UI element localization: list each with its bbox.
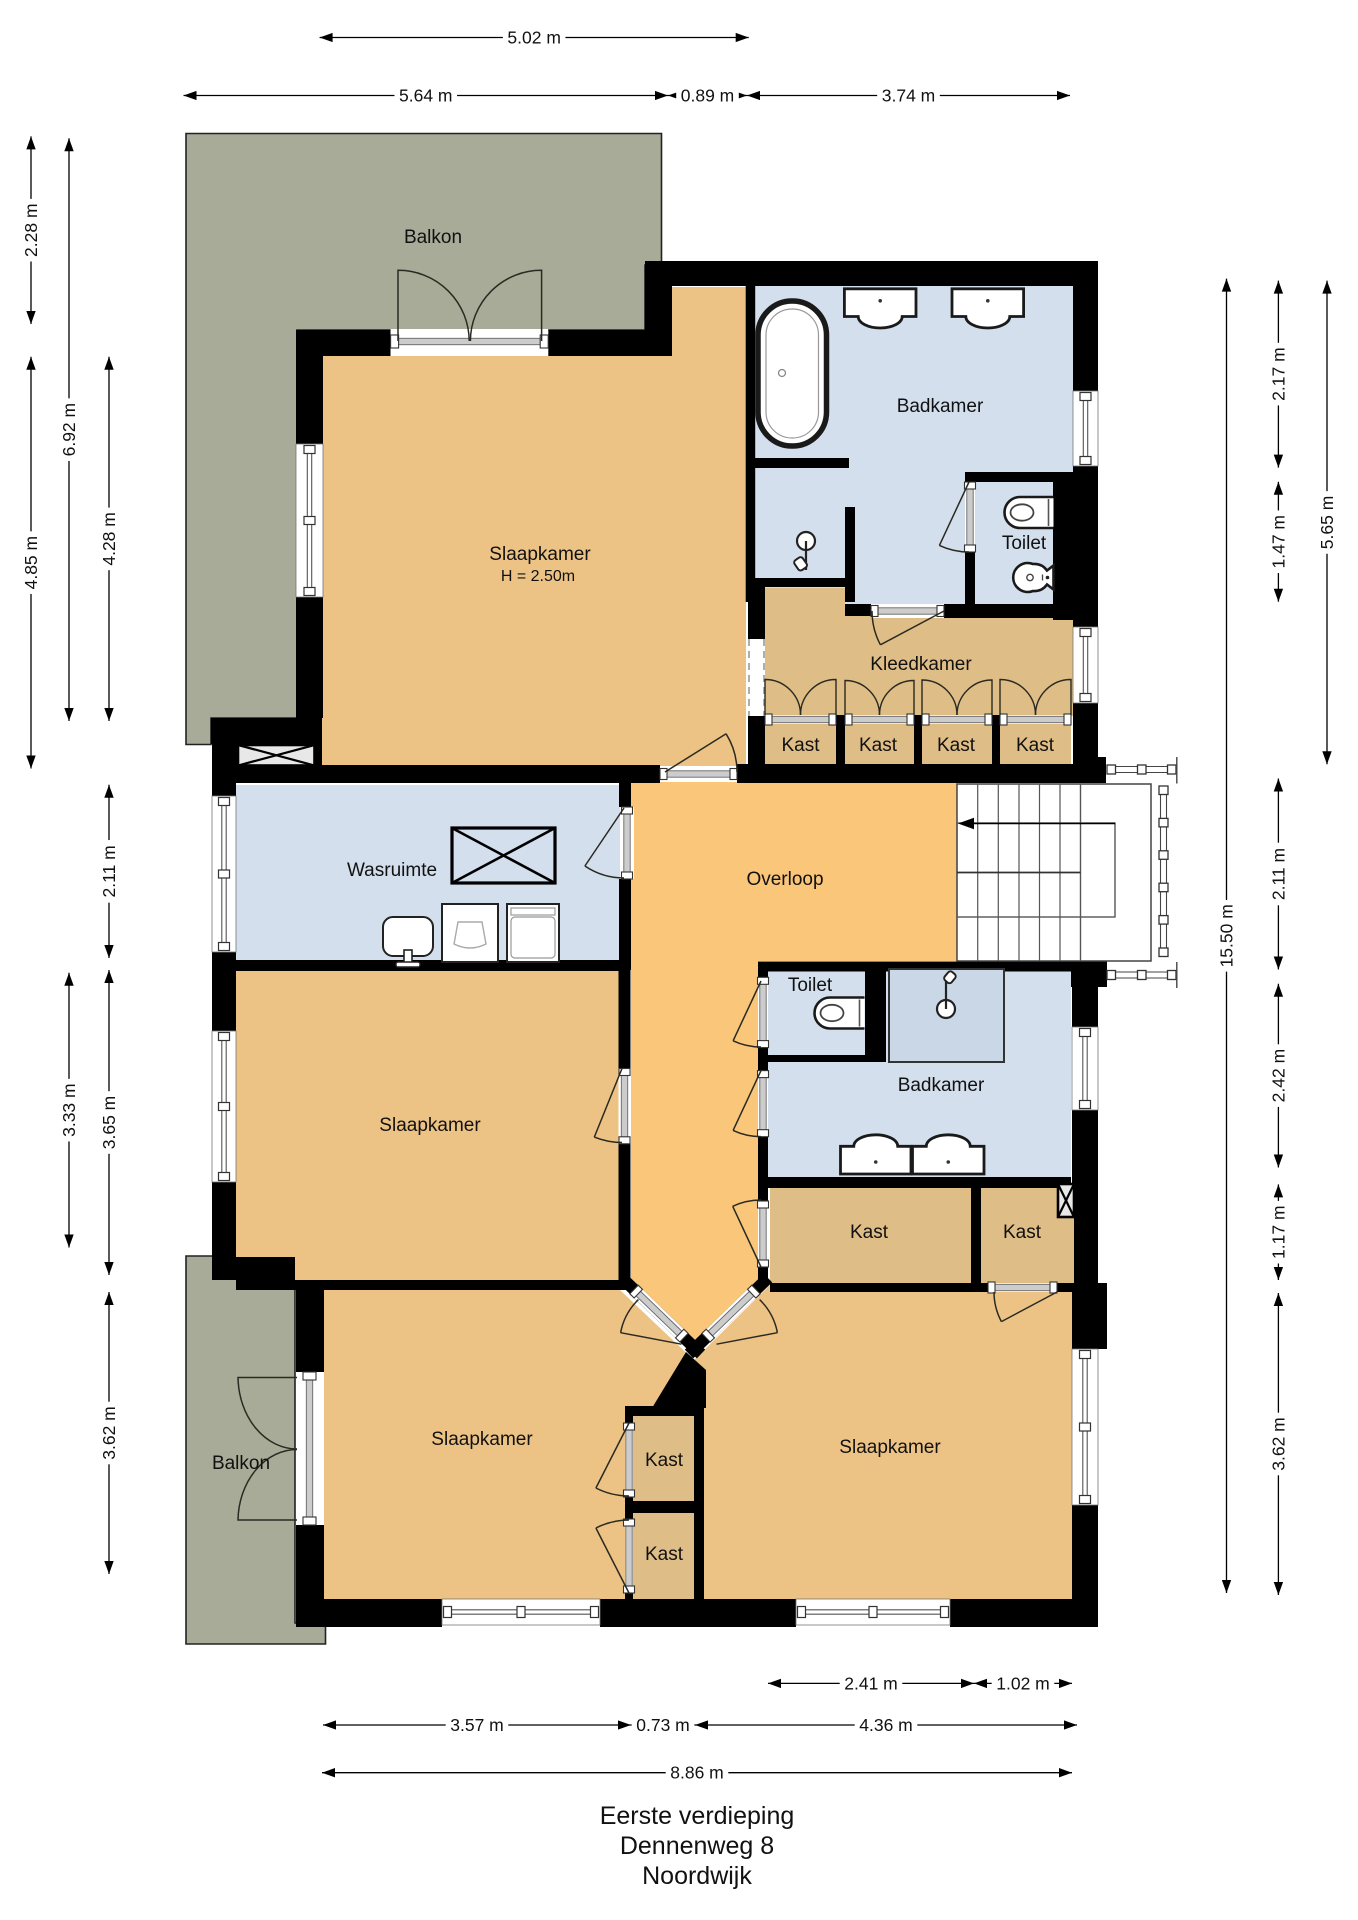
svg-text:Overloop: Overloop bbox=[746, 869, 823, 890]
svg-text:Kast: Kast bbox=[937, 735, 976, 756]
svg-text:3.74 m: 3.74 m bbox=[882, 86, 936, 106]
svg-text:Badkamer: Badkamer bbox=[897, 396, 984, 417]
svg-text:Kast: Kast bbox=[645, 1450, 684, 1471]
svg-text:2.28 m: 2.28 m bbox=[21, 203, 41, 257]
svg-text:1.47 m: 1.47 m bbox=[1268, 515, 1288, 569]
svg-text:1.02 m: 1.02 m bbox=[996, 1673, 1050, 1693]
svg-text:3.57 m: 3.57 m bbox=[450, 1715, 504, 1735]
svg-text:Kleedkamer: Kleedkamer bbox=[870, 654, 972, 675]
svg-text:2.11 m: 2.11 m bbox=[99, 845, 119, 897]
svg-text:15.50 m: 15.50 m bbox=[1217, 904, 1237, 967]
svg-text:Toilet: Toilet bbox=[1002, 533, 1047, 554]
svg-text:8.86 m: 8.86 m bbox=[670, 1763, 724, 1783]
svg-text:0.89 m: 0.89 m bbox=[681, 86, 735, 106]
svg-text:2.41 m: 2.41 m bbox=[844, 1673, 898, 1693]
svg-text:Badkamer: Badkamer bbox=[898, 1075, 985, 1096]
svg-text:3.62 m: 3.62 m bbox=[1268, 1417, 1288, 1471]
svg-text:Slaapkamer: Slaapkamer bbox=[839, 1437, 941, 1458]
svg-text:Kast: Kast bbox=[781, 735, 820, 756]
svg-text:5.65 m: 5.65 m bbox=[1317, 496, 1337, 550]
svg-text:Slaapkamer: Slaapkamer bbox=[431, 1429, 533, 1450]
svg-text:4.85 m: 4.85 m bbox=[21, 536, 41, 590]
svg-text:Kast: Kast bbox=[1016, 735, 1055, 756]
svg-text:2.11 m: 2.11 m bbox=[1268, 848, 1288, 900]
svg-text:2.42 m: 2.42 m bbox=[1268, 1049, 1288, 1103]
svg-text:2.17 m: 2.17 m bbox=[1268, 347, 1288, 401]
svg-text:Kast: Kast bbox=[645, 1544, 684, 1565]
svg-text:Balkon: Balkon bbox=[404, 227, 462, 248]
svg-text:3.65 m: 3.65 m bbox=[99, 1096, 119, 1150]
svg-text:Kast: Kast bbox=[850, 1222, 889, 1243]
svg-text:1.17 m: 1.17 m bbox=[1268, 1205, 1288, 1259]
svg-text:Noordwijk: Noordwijk bbox=[642, 1862, 752, 1890]
svg-text:Slaapkamer: Slaapkamer bbox=[379, 1115, 481, 1136]
svg-text:3.62 m: 3.62 m bbox=[99, 1406, 119, 1460]
svg-text:3.33 m: 3.33 m bbox=[59, 1083, 79, 1137]
svg-text:H = 2.50m: H = 2.50m bbox=[501, 568, 575, 585]
svg-text:Wasruimte: Wasruimte bbox=[347, 860, 437, 881]
svg-text:Toilet: Toilet bbox=[788, 975, 833, 996]
svg-text:Eerste verdieping: Eerste verdieping bbox=[600, 1802, 795, 1830]
svg-text:5.02 m: 5.02 m bbox=[507, 28, 561, 48]
svg-text:Balkon: Balkon bbox=[212, 1453, 270, 1474]
svg-text:4.28 m: 4.28 m bbox=[99, 512, 119, 566]
svg-text:0.73 m: 0.73 m bbox=[636, 1715, 690, 1735]
svg-text:Kast: Kast bbox=[859, 735, 898, 756]
svg-text:6.92 m: 6.92 m bbox=[59, 403, 79, 457]
svg-text:5.64 m: 5.64 m bbox=[399, 86, 453, 106]
svg-text:Slaapkamer: Slaapkamer bbox=[489, 544, 591, 565]
svg-text:4.36 m: 4.36 m bbox=[859, 1715, 913, 1735]
svg-text:Kast: Kast bbox=[1003, 1222, 1042, 1243]
svg-text:Dennenweg 8: Dennenweg 8 bbox=[620, 1832, 774, 1860]
